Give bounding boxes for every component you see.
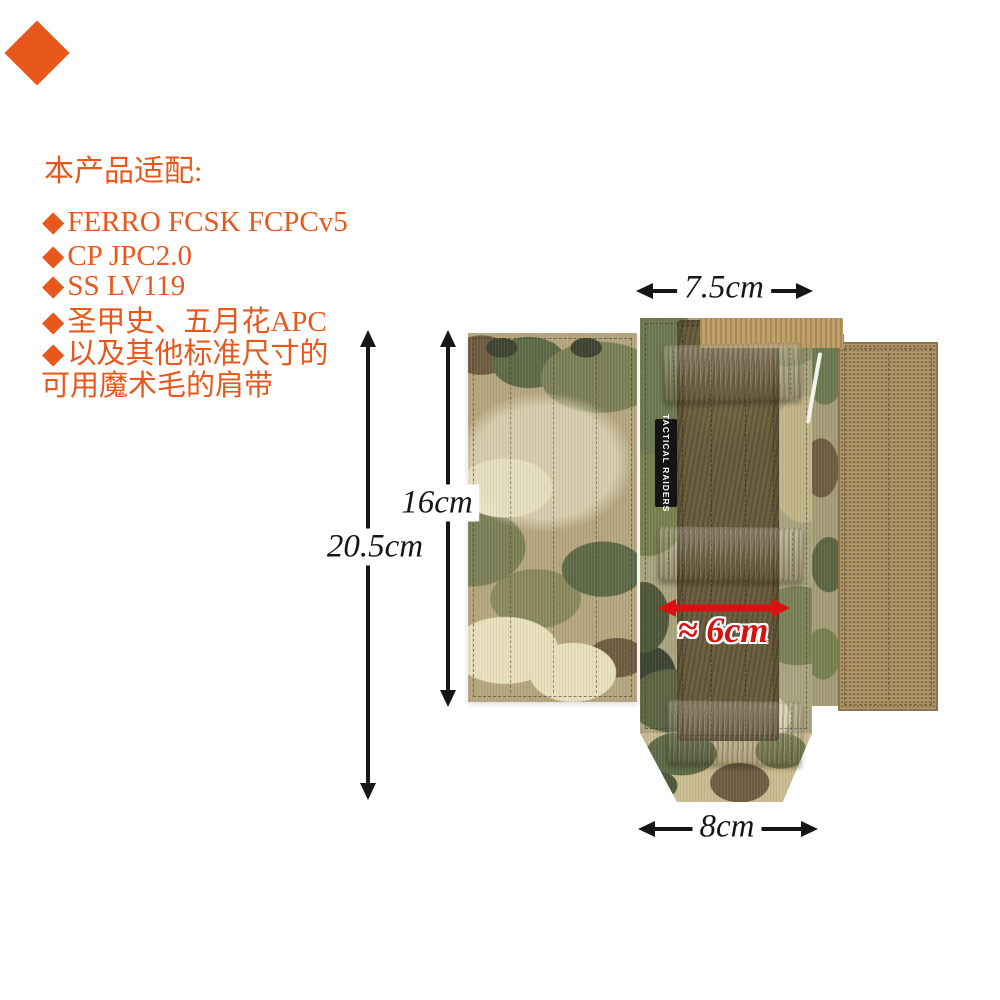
- stitch-line: [596, 342, 597, 693]
- arrow-head-left-icon: [638, 821, 655, 837]
- stitch-line: [792, 533, 793, 577]
- compat-item: 可用魔术毛的肩带: [38, 362, 273, 404]
- arrow-head-up-icon: [360, 330, 376, 347]
- product-image-canvas: 本产品适配: ◆FERRO FCSK FCPCv5 ◆CP JPC2.0 ◆SS…: [0, 0, 1000, 1000]
- keeper-strap-bottom: [667, 700, 803, 765]
- arrow-head-right-icon: [772, 599, 790, 617]
- dim-arrow-velcro-width: ≈ 6cm: [658, 599, 790, 617]
- stitch-line: [677, 705, 679, 758]
- arrow-head-right-icon: [796, 283, 813, 299]
- stitch-line: [673, 350, 675, 397]
- arrow-head-right-icon: [801, 821, 818, 837]
- intro-heading: 本产品适配:: [44, 146, 202, 190]
- stitch-line: [510, 342, 511, 693]
- arrow-head-left-icon: [636, 283, 653, 299]
- left-loop-panel: [468, 333, 637, 702]
- dim-label-pad-height: 16cm: [394, 485, 479, 522]
- dim-arrow-top-width: 7.5cm: [636, 282, 813, 300]
- stitch-line: [668, 531, 669, 575]
- dim-arrow-pad-height: 16cm: [440, 330, 456, 707]
- keeper-strap-top: [662, 343, 801, 403]
- dim-label-bottom-width: 8cm: [693, 809, 762, 846]
- arrow-head-down-icon: [360, 783, 376, 800]
- dim-label-total-height: 20.5cm: [320, 529, 430, 566]
- compat-item: ◆FERRO FCSK FCPCv5: [42, 204, 348, 239]
- stitch-line: [888, 353, 889, 700]
- arrow-head-up-icon: [440, 330, 456, 347]
- right-hook-velcro-panel: [838, 342, 938, 711]
- corner-diamond-badge: [4, 20, 69, 85]
- arrow-head-left-icon: [658, 599, 676, 617]
- stitch-line: [553, 342, 554, 693]
- dim-label-top-width: 7.5cm: [677, 270, 771, 307]
- compat-item-text: FERRO FCSK FCPCv5: [67, 206, 347, 238]
- brand-tag: TACTICAL RAIDERS: [655, 419, 677, 507]
- dim-arrow-total-height: 20.5cm: [360, 330, 376, 800]
- dim-label-velcro-width: ≈ 6cm: [678, 609, 769, 651]
- arrow-head-down-icon: [440, 690, 456, 707]
- dim-arrow-bottom-width: 8cm: [638, 820, 818, 838]
- keeper-strap-middle: [658, 526, 804, 582]
- stitch-line: [789, 348, 791, 395]
- compat-item-text: 可用魔术毛的肩带: [41, 370, 273, 402]
- stitch-line: [791, 707, 793, 760]
- diamond-bullet-icon: ◆: [42, 206, 64, 238]
